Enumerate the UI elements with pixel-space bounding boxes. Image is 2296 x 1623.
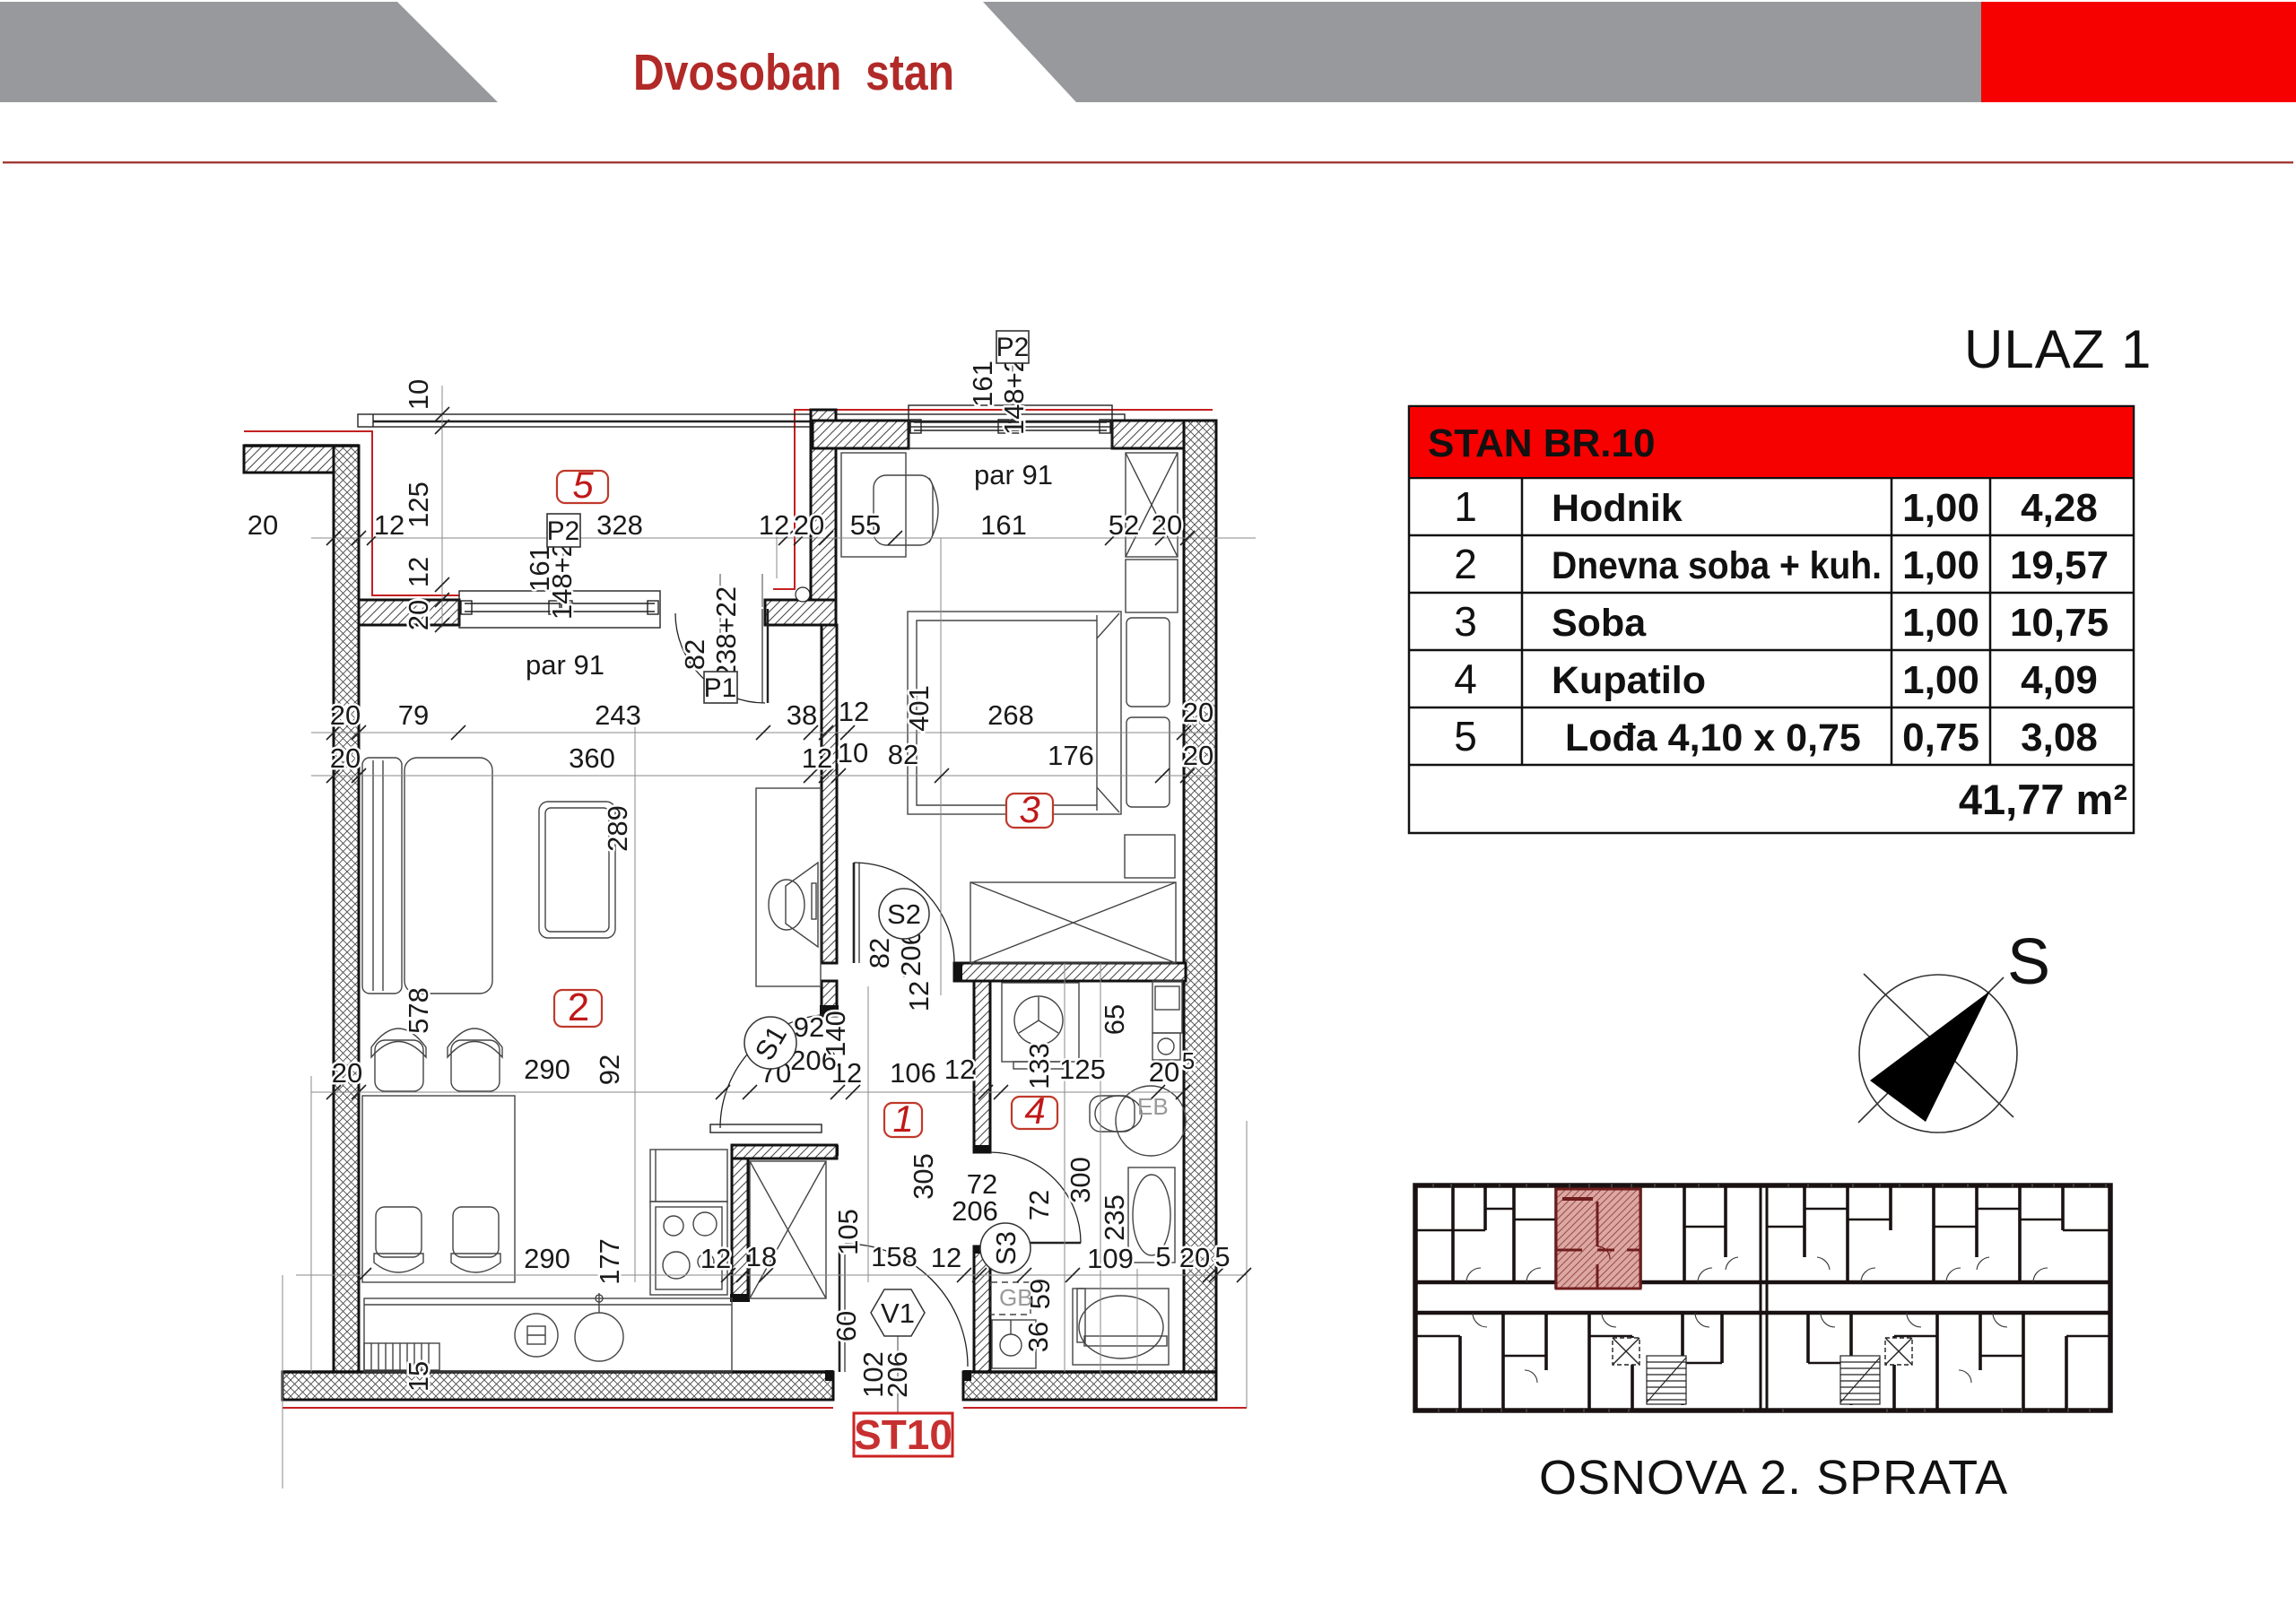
svg-text:5: 5 xyxy=(1214,1241,1230,1272)
svg-text:177: 177 xyxy=(594,1238,625,1285)
svg-text:578: 578 xyxy=(403,987,434,1034)
svg-text:20: 20 xyxy=(1183,697,1213,728)
svg-text:3,08: 3,08 xyxy=(2021,716,2098,759)
svg-text:109: 109 xyxy=(1087,1243,1134,1274)
svg-text:60: 60 xyxy=(831,1311,862,1341)
svg-text:38: 38 xyxy=(787,699,817,731)
svg-text:P2: P2 xyxy=(996,333,1030,362)
svg-text:20: 20 xyxy=(332,1057,362,1089)
svg-text:290: 290 xyxy=(524,1243,570,1274)
svg-text:18: 18 xyxy=(746,1241,777,1272)
svg-text:1,00: 1,00 xyxy=(1902,601,1979,645)
svg-text:1,00: 1,00 xyxy=(1902,543,1979,587)
svg-text:12: 12 xyxy=(374,509,404,541)
svg-text:12: 12 xyxy=(802,742,832,774)
svg-text:41,77 m²: 41,77 m² xyxy=(1959,776,2127,823)
svg-text:10: 10 xyxy=(838,737,868,768)
svg-text:S: S xyxy=(2007,926,2050,998)
svg-text:12: 12 xyxy=(403,557,434,587)
svg-text:52: 52 xyxy=(1109,509,1139,541)
svg-text:S3: S3 xyxy=(990,1231,1022,1265)
svg-text:par 91: par 91 xyxy=(526,649,604,681)
svg-text:235: 235 xyxy=(1099,1194,1130,1241)
svg-text:5: 5 xyxy=(1155,1241,1170,1272)
svg-text:1,00: 1,00 xyxy=(1902,486,1979,530)
svg-text:12: 12 xyxy=(944,1054,975,1085)
svg-text:12: 12 xyxy=(903,981,935,1011)
svg-text:176: 176 xyxy=(1048,740,1094,771)
svg-text:206: 206 xyxy=(882,1351,913,1398)
svg-text:20: 20 xyxy=(1183,740,1213,771)
svg-text:10: 10 xyxy=(403,379,434,410)
svg-text:OSNOVA 2. SPRATA: OSNOVA 2. SPRATA xyxy=(1539,1451,2008,1505)
svg-text:20: 20 xyxy=(1179,1242,1210,1273)
svg-text:1: 1 xyxy=(1454,483,1477,530)
svg-text:65: 65 xyxy=(1099,1004,1130,1035)
svg-text:20: 20 xyxy=(1152,509,1182,541)
svg-text:305: 305 xyxy=(908,1153,939,1200)
svg-text:12: 12 xyxy=(931,1242,961,1273)
svg-text:1: 1 xyxy=(892,1098,913,1140)
svg-text:92: 92 xyxy=(594,1055,625,1085)
svg-text:125: 125 xyxy=(1059,1054,1106,1085)
svg-text:36: 36 xyxy=(1022,1322,1054,1352)
svg-text:4,09: 4,09 xyxy=(2021,658,2098,702)
svg-text:12: 12 xyxy=(839,696,869,727)
svg-text:20: 20 xyxy=(794,509,824,541)
svg-text:12: 12 xyxy=(759,509,789,541)
svg-text:4,28: 4,28 xyxy=(2021,486,2098,530)
svg-text:Lođa 4,10 x 0,75: Lođa 4,10 x 0,75 xyxy=(1565,716,1861,759)
svg-text:72: 72 xyxy=(1023,1190,1055,1220)
svg-text:268: 268 xyxy=(987,699,1034,731)
svg-text:79: 79 xyxy=(398,699,429,731)
svg-text:20: 20 xyxy=(1149,1056,1179,1088)
svg-text:5: 5 xyxy=(1454,713,1477,759)
svg-text:238+22: 238+22 xyxy=(710,586,742,680)
svg-text:82: 82 xyxy=(864,938,895,968)
svg-text:158: 158 xyxy=(871,1241,918,1272)
svg-text:5: 5 xyxy=(1182,1047,1195,1074)
svg-text:4: 4 xyxy=(1024,1089,1045,1132)
svg-text:106: 106 xyxy=(890,1057,936,1089)
svg-text:P1: P1 xyxy=(704,673,737,703)
svg-text:Dvosoban stan: Dvosoban stan xyxy=(633,44,954,101)
svg-text:20: 20 xyxy=(248,509,278,541)
svg-text:0,75: 0,75 xyxy=(1902,716,1979,759)
svg-text:161: 161 xyxy=(967,360,998,407)
svg-text:ST10: ST10 xyxy=(854,1411,952,1458)
svg-text:105: 105 xyxy=(832,1209,864,1255)
svg-text:2: 2 xyxy=(568,985,589,1029)
svg-text:20: 20 xyxy=(330,699,361,731)
svg-text:par 91: par 91 xyxy=(974,459,1053,490)
svg-text:ULAZ 1: ULAZ 1 xyxy=(1964,319,2152,379)
svg-text:161: 161 xyxy=(980,509,1027,541)
svg-text:STAN BR.10: STAN BR.10 xyxy=(1428,421,1655,465)
svg-text:2: 2 xyxy=(1454,541,1477,587)
svg-text:300: 300 xyxy=(1065,1157,1096,1203)
svg-text:55: 55 xyxy=(850,509,881,541)
svg-text:20: 20 xyxy=(330,742,361,774)
svg-text:3: 3 xyxy=(1019,788,1039,830)
svg-text:289: 289 xyxy=(602,805,633,852)
svg-text:EB: EB xyxy=(1137,1093,1169,1120)
svg-text:206: 206 xyxy=(952,1195,998,1227)
svg-text:P2: P2 xyxy=(547,516,580,546)
svg-text:V1: V1 xyxy=(881,1298,915,1329)
svg-text:360: 360 xyxy=(569,742,615,774)
svg-text:15: 15 xyxy=(403,1361,434,1392)
svg-text:Soba: Soba xyxy=(1552,602,1647,645)
svg-text:12: 12 xyxy=(700,1243,731,1274)
svg-text:243: 243 xyxy=(595,699,641,731)
svg-text:328: 328 xyxy=(596,509,643,541)
svg-text:5: 5 xyxy=(572,464,594,506)
svg-text:82: 82 xyxy=(679,639,710,670)
svg-text:Dnevna soba + kuh.: Dnevna soba + kuh. xyxy=(1552,544,1882,587)
svg-text:82: 82 xyxy=(888,739,918,770)
svg-text:3: 3 xyxy=(1454,598,1477,645)
svg-text:19,57: 19,57 xyxy=(2010,543,2109,587)
svg-text:Kupatilo: Kupatilo xyxy=(1552,659,1706,702)
svg-text:Hodnik: Hodnik xyxy=(1552,487,1683,530)
svg-text:125: 125 xyxy=(403,482,434,528)
svg-text:290: 290 xyxy=(524,1054,570,1085)
svg-text:133: 133 xyxy=(1023,1043,1055,1089)
svg-text:4: 4 xyxy=(1454,655,1477,702)
svg-text:20: 20 xyxy=(403,600,434,630)
svg-text:S2: S2 xyxy=(887,898,921,930)
svg-text:1,00: 1,00 xyxy=(1902,658,1979,702)
svg-text:GB: GB xyxy=(999,1284,1033,1311)
svg-text:10,75: 10,75 xyxy=(2010,601,2109,645)
svg-text:401: 401 xyxy=(903,685,935,732)
svg-text:140: 140 xyxy=(820,1011,851,1057)
